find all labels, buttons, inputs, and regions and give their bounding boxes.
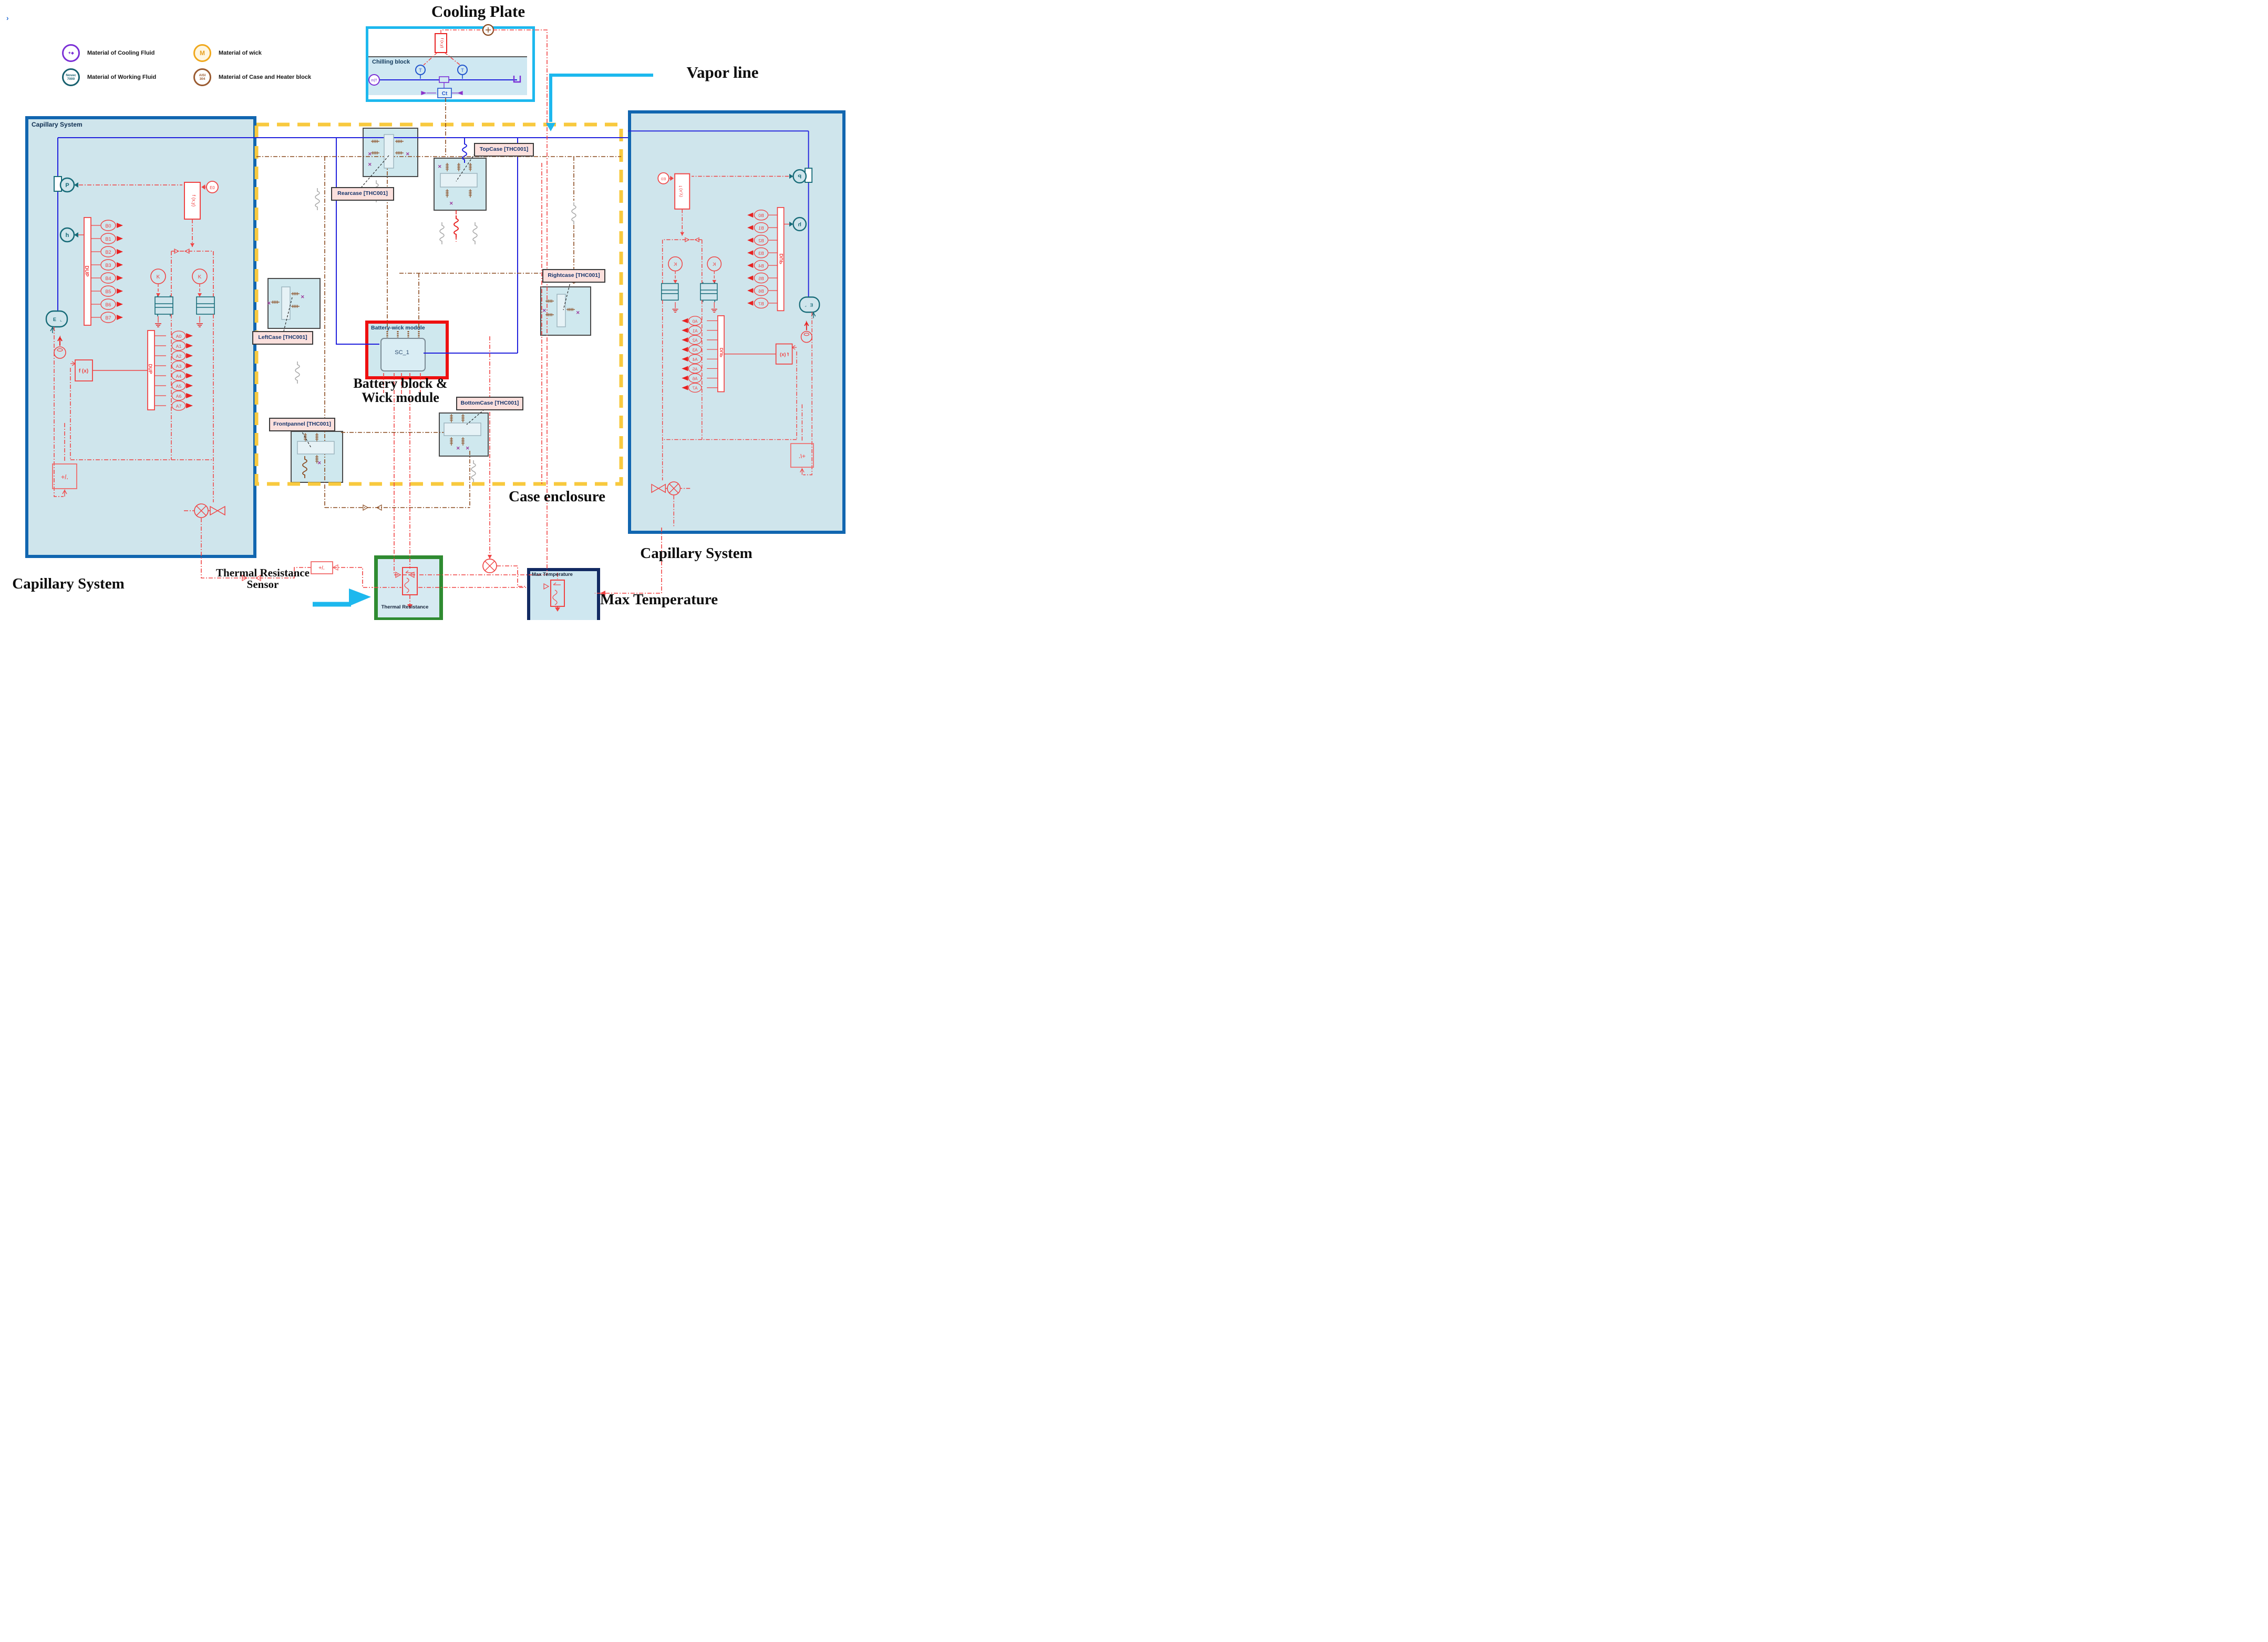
svg-text:E0: E0 <box>210 185 215 190</box>
thermal-resistance-box-label: Thermal Resistance <box>375 604 435 610</box>
svg-text:T: T <box>419 68 422 73</box>
svg-text:A5: A5 <box>176 384 182 389</box>
svg-text:B3: B3 <box>105 263 111 268</box>
svg-text:m|T: m|T <box>371 79 378 82</box>
case-heater-icon: AISI 304 <box>193 68 211 86</box>
svg-text:✕: ✕ <box>317 460 322 466</box>
svg-text:⌞: ⌞ <box>60 317 62 322</box>
svg-text:B6: B6 <box>105 302 111 307</box>
battery-block-label: Battery block & Wick module <box>332 376 469 405</box>
max-temperature-box-label: Max Temperature <box>532 572 573 577</box>
cursor-artifact: › <box>6 14 9 22</box>
rightcase-label: Rightcase [THC001] <box>542 269 605 283</box>
svg-text:A2: A2 <box>176 354 182 359</box>
diagram-svg: P h f (x,y) E0 DUP <box>0 0 857 620</box>
leftcase-label: LeftCase [THC001] <box>252 331 313 345</box>
svg-text:E: E <box>53 317 56 322</box>
badge-text: AISI <box>199 74 206 77</box>
legend-label: Material of Case and Heater block <box>219 74 311 80</box>
svg-text:✕: ✕ <box>438 164 442 169</box>
svg-text:DUP: DUP <box>84 265 89 276</box>
red-wires <box>201 30 662 610</box>
frontpannel-label: Frontpannel [THC001] <box>269 418 335 431</box>
sc1-label: SC_1 <box>380 349 424 356</box>
wick-icon: M <box>193 44 211 62</box>
svg-text:K: K <box>198 274 202 280</box>
svg-text:A1: A1 <box>176 344 182 349</box>
mixer-bottom <box>483 555 497 573</box>
svg-text:f (x,y): f (x,y) <box>191 195 197 207</box>
legend-item-working-fluid: Novec 7000 Material of Working Fluid <box>62 68 156 86</box>
svg-text:✕: ✕ <box>542 308 547 313</box>
rearcase-label: Rearcase [THC001] <box>331 187 394 201</box>
cooling-plate-content: f (x,y) m|T T T Ct <box>369 25 520 98</box>
svg-text:Ct: Ct <box>442 91 448 97</box>
badge-text: Novec <box>66 74 76 77</box>
capillary-right-content <box>628 131 819 528</box>
legend-item-cooling-fluid: ✦◆ Material of Cooling Fluid <box>62 44 154 62</box>
capillary-system-label-left: Capillary System <box>5 576 131 592</box>
svg-text:DUP: DUP <box>148 364 153 374</box>
svg-text:✕: ✕ <box>456 446 460 451</box>
svg-text:B5: B5 <box>105 289 111 294</box>
svg-text:h: h <box>66 232 69 239</box>
max-temperature-component <box>544 580 564 612</box>
thermal-sensor-line2: Sensor <box>200 579 326 591</box>
svg-text:✕: ✕ <box>368 151 372 157</box>
thermal-resistance-component <box>403 567 417 608</box>
figure-canvas: › Capillary System Chilling block Batter… <box>0 0 857 620</box>
svg-text:B0: B0 <box>105 223 111 229</box>
thermal-resistance-arrow <box>313 588 371 605</box>
battery-label-line2: Wick module <box>332 390 469 405</box>
svg-text:✕: ✕ <box>267 301 271 306</box>
badge-text: 7000 <box>67 77 75 81</box>
legend-label: Material of Cooling Fluid <box>87 50 154 56</box>
topcase-label: TopCase [THC001] <box>474 143 534 157</box>
svg-text:A7: A7 <box>176 404 182 409</box>
svg-text:+/.: +/. <box>61 473 68 481</box>
svg-text:T: T <box>461 68 464 73</box>
case-enclosure-label: Case enclosure <box>489 489 625 504</box>
svg-text:✕: ✕ <box>368 162 372 167</box>
svg-text:A0: A0 <box>176 334 182 339</box>
thermal-sensor-line1: Thermal Resistance <box>200 567 326 579</box>
red-convection-spring <box>454 215 458 237</box>
svg-text:A4: A4 <box>176 374 182 379</box>
svg-text:B1: B1 <box>105 236 111 242</box>
svg-text:A3: A3 <box>176 364 182 369</box>
svg-text:P: P <box>65 182 69 189</box>
svg-text:f (x,y): f (x,y) <box>440 38 445 48</box>
cooling-plate-title: Cooling Plate <box>399 3 557 20</box>
svg-text:K: K <box>157 274 160 280</box>
legend-label: Material of Working Fluid <box>87 74 156 80</box>
svg-text:A6: A6 <box>176 394 182 399</box>
working-fluid-icon: Novec 7000 <box>62 68 80 86</box>
legend-item-wick: M Material of wick <box>193 44 262 62</box>
legend-label: Material of wick <box>219 50 262 56</box>
legend-item-case-heater: AISI 304 Material of Case and Heater blo… <box>193 68 311 86</box>
svg-text:✕: ✕ <box>449 201 453 206</box>
capillary-system-label-right: Capillary System <box>633 545 759 561</box>
svg-text:✕: ✕ <box>466 446 470 451</box>
svg-text:B4: B4 <box>105 276 111 281</box>
badge-text: 304 <box>200 77 205 81</box>
svg-text:B2: B2 <box>105 250 111 255</box>
convection-springs <box>295 180 576 482</box>
vapor-line-label: Vapor line <box>654 64 791 81</box>
capillary-left-content: P h f (x,y) E0 DUP <box>46 138 250 552</box>
thermal-resistance-sensor-label: Thermal Resistance Sensor <box>200 567 326 591</box>
svg-text:f (x): f (x) <box>79 368 88 374</box>
svg-text:✕: ✕ <box>301 294 305 300</box>
battery-wick-module-label: Battery-wick module <box>371 325 425 331</box>
cooling-fluid-icon: ✦◆ <box>62 44 80 62</box>
vapor-line-arrow <box>546 75 653 131</box>
svg-text:B7: B7 <box>105 315 111 321</box>
battery-label-line1: Battery block & <box>332 376 469 390</box>
max-temperature-label: Max Temperature <box>596 592 722 607</box>
vapor-line-wire <box>250 138 628 353</box>
svg-text:✕: ✕ <box>576 310 580 315</box>
svg-text:✕: ✕ <box>406 151 410 157</box>
bottomcase-label: BottomCase [THC001] <box>456 397 523 410</box>
